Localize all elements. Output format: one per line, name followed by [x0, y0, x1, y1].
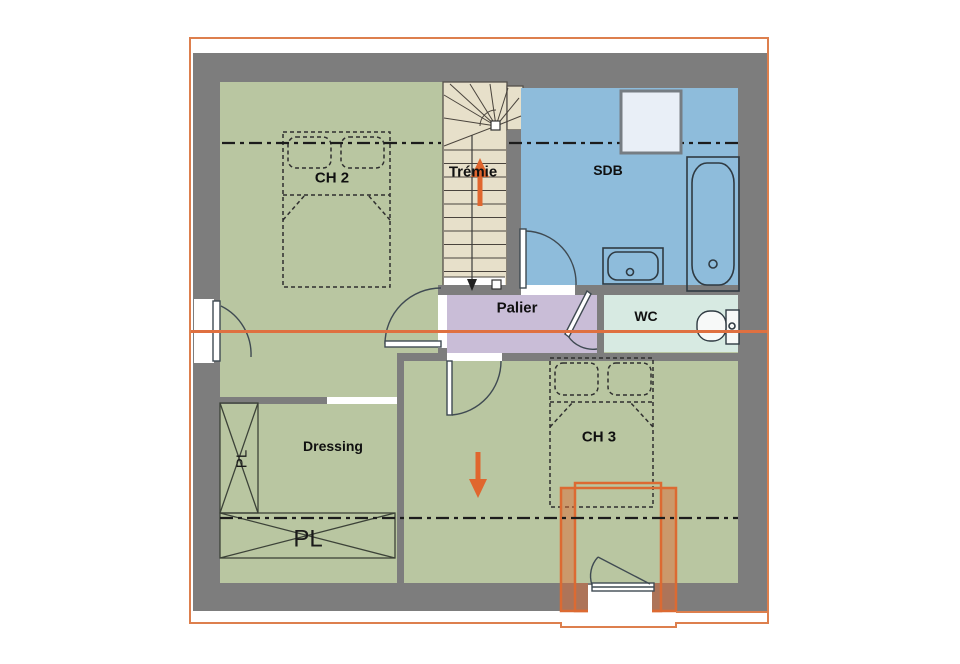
sdb-door-opening	[521, 285, 575, 295]
wall-stair-sdb	[507, 130, 521, 288]
door-leaf	[385, 341, 441, 347]
label-ch3: CH 3	[582, 429, 616, 446]
stairwell-winder-extension	[507, 86, 523, 130]
wall-ch2-dressing	[193, 397, 327, 404]
dormer-side-band	[561, 488, 575, 611]
floor-plan-page: CH 2 Trémie SDB Palier WC Dressing CH 3 …	[0, 0, 960, 664]
floor-plan-drawing: CH 2 Trémie SDB Palier WC Dressing CH 3 …	[0, 0, 960, 664]
ch2-door-opening	[438, 295, 447, 348]
toilet-tank	[726, 310, 739, 344]
newel-post-bottom	[492, 280, 501, 289]
ch3-door-opening	[447, 353, 502, 361]
label-dressing: Dressing	[303, 438, 363, 454]
label-ch2: CH 2	[315, 170, 349, 187]
label-pl-horizontal: PL	[293, 526, 322, 553]
label-palier: Palier	[497, 300, 538, 317]
top-wall-right-section	[507, 53, 738, 88]
roof-window	[621, 91, 681, 153]
toilet-bowl	[697, 311, 726, 341]
door-leaf	[447, 361, 452, 415]
wall-dressing-ch3	[397, 353, 404, 583]
dressing-opening	[327, 397, 397, 404]
label-sdb: SDB	[593, 162, 623, 178]
dormer-wall-patch	[575, 583, 588, 611]
newel-post-top	[491, 121, 500, 130]
stairwell-floor	[443, 82, 507, 286]
label-tremie: Trémie	[449, 164, 497, 181]
dormer-side-band	[661, 488, 676, 611]
label-wc: WC	[634, 308, 657, 324]
door-leaf	[520, 229, 526, 288]
wall-stub-palier-bottom	[438, 348, 447, 353]
toilet	[697, 310, 739, 344]
label-pl-vertical: PL	[234, 450, 251, 468]
wall-stub-palier-top	[438, 285, 447, 295]
wall-palier-wc	[597, 295, 604, 353]
